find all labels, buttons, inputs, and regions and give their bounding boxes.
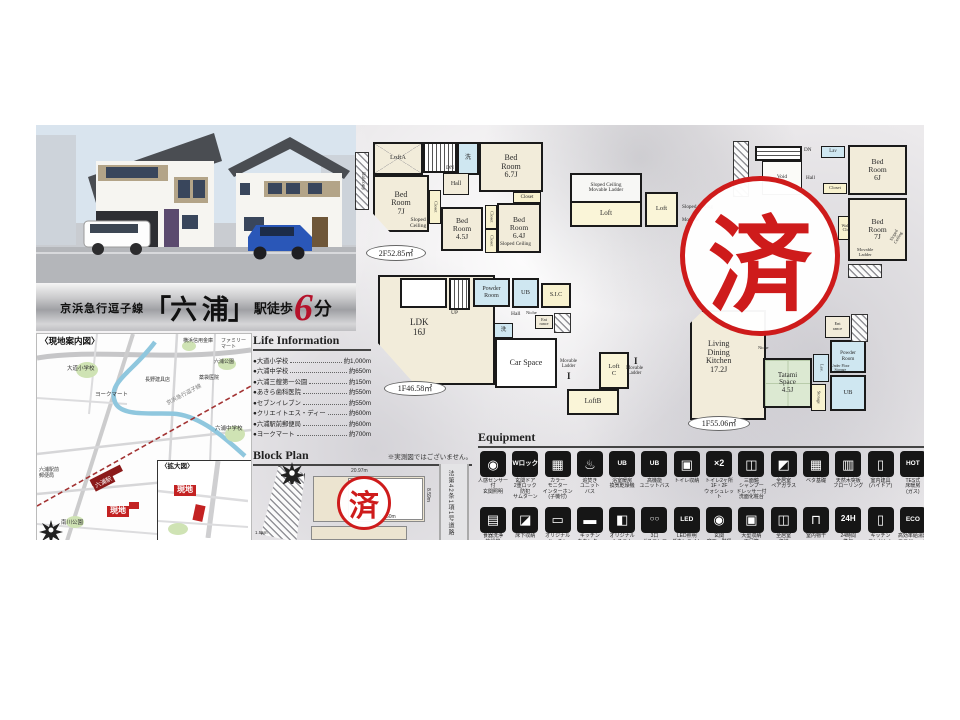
rail-line-label: 京浜急行逗子線	[60, 300, 144, 316]
room-bed-4-5: Bed Room 4.5J	[441, 207, 483, 251]
room-bed-6-7: Bed Room 6.7J	[479, 142, 543, 192]
sold-stamp-text: 済	[708, 181, 812, 332]
equipment-item: 24H24時間 換気	[833, 507, 863, 540]
room-label: Loft	[656, 206, 667, 213]
room-ldk-right-label: Living Dining Kitchen 17.2J	[706, 340, 731, 375]
handrail-icon: ◉	[706, 507, 732, 533]
map-site-label: 現地	[107, 506, 129, 517]
foundation-icon: ▦	[803, 451, 829, 477]
map-label-clinic: 薬袋医院	[199, 376, 219, 382]
room-hall-2f-left: Hall	[443, 173, 469, 195]
room-label: Hall	[451, 181, 461, 187]
niche-label: Niche	[758, 346, 768, 351]
ladder-mark: I	[634, 356, 638, 366]
equipment-label: 高機能 ユニットバス	[639, 479, 669, 490]
high-door-icon: ▯	[868, 451, 894, 477]
room-sic: S.I.C	[541, 283, 571, 308]
dim-top: 20.97m	[351, 468, 368, 474]
area-label-2f-left: 2F52.85㎡	[366, 245, 426, 261]
equipment-item: ◉玄関 廊下・階段 手すり付	[704, 507, 734, 540]
equipment-item: ▬キッチン カウンター	[575, 507, 605, 540]
sold-stamp-small-text: 済	[349, 481, 379, 525]
equipment-label: カラー モニター インターホン (子機付)	[543, 479, 573, 501]
room-label: Loft C	[608, 364, 619, 378]
life-item-name: ヨークマート	[257, 429, 295, 438]
station-banner: 京浜急行逗子線 「六 浦」 駅徒歩 6 分	[36, 284, 356, 331]
area-text: 1F46.58㎡	[398, 383, 432, 394]
room-label: Bed Room 6.7J	[501, 154, 521, 179]
life-item-name: セブンイレブン	[257, 398, 301, 407]
car-space: Car Space	[495, 338, 557, 388]
equipment-label: 浴室暖房 換気乾燥機	[610, 479, 635, 490]
room-label: Lav.	[819, 364, 824, 372]
equipment-label: 大型収納 下足箱 (鏡付)	[741, 534, 761, 540]
flyer-band: 京浜急行逗子線 「六 浦」 駅徒歩 6 分 〈現地案内	[36, 125, 924, 540]
room-label: UB	[843, 390, 852, 397]
room-label: Closet	[829, 186, 841, 191]
room-lav-1f-right: Lav.	[813, 354, 829, 382]
equipment-label: トイレ2ヶ所 1F・2F ウォシュレット	[704, 479, 734, 501]
equipment-label: オリジナル システム キッチン	[610, 534, 635, 540]
equipment-item: HOTTES式 床暖房 (ガス)	[898, 451, 924, 501]
block-plan-panel: Block Plan ※実測図ではございません。 法第42条1項1号道路 20.…	[253, 448, 472, 540]
room-loft-c: Loft C	[599, 352, 629, 389]
equipment-item: ▦カラー モニター インターホン (子機付)	[543, 451, 573, 501]
life-item-name: クリエイトエス・ディー	[257, 408, 326, 417]
leader-dots	[309, 383, 347, 384]
block-plan-note: ※実測図ではございません。	[388, 451, 472, 461]
equipment-item: ▯室内建具 (ハイドア)	[866, 451, 896, 501]
map-label-postoffice: 六浦駅前 郵便局	[39, 468, 59, 480]
exterior-render-graphic	[36, 125, 356, 283]
map-inset-site-label: 現地	[174, 485, 196, 496]
floor-plans: Balcony LoftA DN 洗 Bed Room 6.7J Hall Be…	[354, 128, 924, 433]
equipment-item: ▣トイレ収納	[672, 451, 702, 501]
equipment-label: 全居室 ペアガラス	[771, 479, 796, 490]
room-label: Tatami Space 4.5J	[778, 372, 797, 394]
room-closet: Closet	[485, 229, 497, 253]
flyer-page: 京浜急行逗子線 「六 浦」 駅徒歩 6 分 〈現地案内	[0, 0, 960, 720]
room-label: S.I.C	[550, 292, 562, 298]
leader-dots	[328, 414, 347, 415]
dim-left: 1.55m	[255, 530, 268, 535]
life-item-name: 六浦三艘第一公園	[257, 377, 307, 386]
stairs-dn-label: DN	[804, 148, 812, 154]
map-label-jhs: 六浦中学校	[215, 426, 243, 432]
mirror-dresser-icon: ◫	[738, 451, 764, 477]
room-entrance-left: Ent rance	[535, 315, 553, 329]
room-label: 洗	[501, 328, 507, 334]
movable-ladder-label: Movable Ladder	[560, 359, 577, 369]
bath-dryer-icon: UB	[609, 451, 635, 477]
room-label: Storage	[816, 391, 820, 404]
room-closet: Closet	[513, 192, 541, 203]
equipment-panel: Equipment ◉人感センサー付 玄関照明 Wロック玄関ドア 2重ロック 防…	[478, 430, 924, 540]
exterior-photo	[36, 125, 356, 283]
ventilation-24h-icon: 24H	[835, 507, 861, 533]
toilet-storage-icon: ▣	[674, 451, 700, 477]
area-label-1f-left: 1F46.58㎡	[384, 381, 446, 396]
room-loft-a: LoftA	[373, 142, 423, 175]
shoe-box-icon: ▣	[738, 507, 764, 533]
equipment-row-2: ▤食器洗浄 乾燥機 ◪床下収納 ▭オリジナル キッチン ▬キッチン カウンター …	[478, 507, 924, 540]
movable-ladder-label: Movable Ladder	[626, 366, 643, 376]
equipment-item: ▣大型収納 下足箱 (鏡付)	[736, 507, 766, 540]
room-label: Bed Room 6J	[868, 158, 886, 182]
room-label: Balcony	[359, 172, 365, 190]
floor-heating-icon: HOT	[900, 451, 924, 477]
room-closet: Closet	[485, 205, 497, 229]
station-name: 「六 浦」	[144, 288, 254, 327]
sold-stamp: 済	[680, 176, 840, 336]
led-downlight-icon: LED	[674, 507, 700, 533]
equipment-label: 玄関ドア 2重ロック 防犯 サムターン	[513, 479, 538, 501]
equipment-item: ♨追焚き ユニット バス	[575, 451, 605, 501]
unit-bath-icon: UB	[641, 451, 667, 477]
room-powder-1f-left: Powder Room	[473, 278, 510, 307]
equipment-item: ◉人感センサー付 玄関照明	[478, 451, 508, 501]
equipment-label: 天然木突板 フローリング	[833, 479, 863, 490]
sloped-ceiling-label: Sloped Ceiling	[500, 242, 531, 248]
movable-ladder-label: Movable Ladder	[857, 248, 873, 258]
equipment-label: 24時間 換気	[840, 534, 856, 540]
room-loft-b: LoftB	[567, 389, 619, 415]
equipment-label: 室内建具 (ハイドア)	[869, 479, 892, 490]
room-closet: Closet	[823, 183, 847, 194]
room-label: Closet	[489, 235, 494, 247]
equipment-item: ▦ベタ基礎	[801, 451, 831, 501]
room-label: Sloped Ceiling Movable Ladder	[589, 183, 623, 194]
kitchen-counter-icon: ▬	[577, 507, 603, 533]
equipment-item: UB高機能 ユニットバス	[639, 451, 669, 501]
room-lav-2f-left: 洗	[457, 142, 479, 175]
room-label: Powder Room	[840, 351, 856, 362]
room-label: Powder Room	[482, 286, 500, 299]
room-entrance-right: Ent rance	[825, 316, 850, 338]
room-label: Lav	[829, 149, 836, 154]
room-loft-mid-1: Loft	[570, 201, 642, 227]
eco-jozu-icon: ECO	[900, 507, 924, 533]
double-lock-icon: Wロック	[512, 451, 538, 477]
room-label: Loft	[600, 210, 612, 217]
room-label: 洗	[465, 155, 471, 161]
hall-label: Hall	[511, 312, 520, 318]
room-label: LoftA	[390, 155, 406, 162]
map-inset-graphic	[158, 461, 248, 538]
dishwasher-icon: ▤	[480, 507, 506, 533]
all-room-storage-icon: ◫	[771, 507, 797, 533]
under-floor-storage-label: Under Floor Storage	[831, 364, 850, 372]
map-inset-title: 〈拡大図〉	[161, 463, 194, 470]
equipment-label: 3口 ガスコンロ	[642, 534, 667, 540]
leader-dots	[290, 372, 347, 373]
map-label-yorkmart: ヨークマート	[95, 392, 128, 398]
stairs-up-label: UP	[451, 311, 458, 317]
equipment-label: キッチン コンセント	[868, 534, 893, 540]
equipment-label: オリジナル キッチン	[545, 534, 570, 540]
map-label-familymart: ファミリーマート	[221, 339, 249, 351]
entrance-porch	[554, 313, 571, 333]
stairs-up	[449, 278, 470, 310]
room-label: Bed Room 7J	[391, 191, 411, 216]
flooring-icon: ▥	[835, 451, 861, 477]
equipment-label: 全居室 収納	[776, 534, 791, 540]
equipment-item: ○○3口 ガスコンロ	[639, 507, 669, 540]
room-label: Closet	[433, 201, 438, 213]
room-label: UB	[521, 290, 530, 297]
room-closet: Closet	[429, 190, 441, 224]
walk-minutes: 6	[294, 289, 313, 327]
leader-dots	[297, 435, 347, 436]
original-kitchen-icon: ▭	[545, 507, 571, 533]
sloped-ceiling-area: Sloped Ceiling Movable Ladder	[570, 173, 642, 201]
equipment-label: キッチン カウンター	[577, 534, 602, 540]
room-label: LoftB	[585, 398, 602, 405]
leader-dots	[303, 425, 347, 426]
equipment-label: トイレ収納	[674, 479, 699, 485]
underfloor-storage-icon: ◪	[512, 507, 538, 533]
equipment-item: ▯キッチン コンセント	[866, 507, 896, 540]
stairs-dn-label: DN	[446, 166, 454, 172]
room-ub-1f-left: UB	[512, 278, 539, 308]
pair-glass-icon: ◩	[771, 451, 797, 477]
equipment-item: ◧オリジナル システム キッチン	[607, 507, 637, 540]
room-label: Closet	[521, 195, 534, 200]
equipment-item: LEDLED照明 ダウンライト	[672, 507, 702, 540]
equipment-item: UB浴室暖房 換気乾燥機	[607, 451, 637, 501]
equipment-label: LED照明 ダウンライト	[672, 534, 702, 540]
map-label-store: 長野建具店	[145, 378, 170, 384]
room-label: Bed Room 4.5J	[453, 217, 471, 241]
equipment-item: ⊓室内物干	[801, 507, 831, 540]
room-balcony: Balcony	[355, 152, 369, 210]
intercom-icon: ▦	[545, 451, 571, 477]
map-title: 〈現地案内図〉	[40, 337, 100, 347]
compass-icon	[281, 462, 303, 484]
room-lav-2f-right: Lav	[821, 146, 845, 158]
leader-dots	[303, 393, 347, 394]
equipment-item: ◫三面鏡 シャンプー ドレッサー付 洗面化粧台	[736, 451, 766, 501]
room-label: Bed Room 7J	[868, 218, 886, 242]
system-kitchen-icon: ◧	[609, 507, 635, 533]
area-label-1f-right: 1F55.06㎡	[688, 416, 750, 431]
room-label: Bed Room 6.4J	[510, 216, 528, 240]
road-label: 法第42条1項1号道路	[446, 470, 455, 536]
life-item-name: 六浦駅前郵便局	[257, 419, 301, 428]
motion-sensor-light-icon: ◉	[480, 451, 506, 477]
map-label-park2: 南川公園	[61, 520, 83, 526]
equipment-item: ◩全居室 ペアガラス	[769, 451, 799, 501]
equipment-item: ECO高効率給湯器 エコジョーズ	[898, 507, 924, 540]
equipment-item: ▭オリジナル キッチン	[543, 507, 573, 540]
equipment-label: 人感センサー付 玄関照明	[478, 479, 508, 496]
kitchen-outlet-icon: ▯	[868, 507, 894, 533]
room-lav-1f-left: 洗	[494, 323, 513, 338]
sloped-ceiling-label: Sloped Ceiling	[410, 218, 426, 230]
equipment-row-1: ◉人感センサー付 玄関照明 Wロック玄関ドア 2重ロック 防犯 サムターン ▦カ…	[478, 451, 924, 501]
equipment-label: 三面鏡 シャンプー ドレッサー付 洗面化粧台	[736, 479, 766, 501]
equipment-label: TES式 床暖房 (ガス)	[905, 479, 920, 496]
equipment-item: ▤食器洗浄 乾燥機	[478, 507, 508, 540]
equipment-label: 高効率給湯器 エコジョーズ	[898, 534, 924, 540]
equipment-item: Wロック玄関ドア 2重ロック 防犯 サムターン	[510, 451, 540, 501]
equipment-label: 追焚き ユニット バス	[580, 479, 600, 496]
room-label: Ent rance	[833, 322, 843, 331]
walk-minutes-unit: 分	[314, 295, 332, 321]
equipment-label: 室内物干	[806, 534, 826, 540]
map-label-park1: 六浦公園	[214, 360, 234, 366]
leader-dots	[290, 362, 341, 363]
equipment-item: ▥天然木突板 フローリング	[833, 451, 863, 501]
room-label: Closet	[489, 211, 494, 223]
two-toilets-icon: ×2	[706, 451, 732, 477]
map-inset: 〈拡大図〉 現地	[157, 460, 252, 540]
map-label-bank: 横浜信用金庫	[183, 339, 213, 345]
equipment-label: ベタ基礎	[806, 479, 826, 485]
reheat-bath-icon: ♨	[577, 451, 603, 477]
equipment-item: ◫全居室 収納	[769, 507, 799, 540]
room-bed-6: Bed Room 6J	[848, 145, 907, 195]
area-map: 〈現地案内図〉 大道小学校 ヨークマート 横浜信用金庫 ファミリーマート 六浦公…	[36, 333, 252, 540]
room-ldk-label: LDK 16J	[410, 318, 429, 337]
room-label: Ent rance	[539, 318, 548, 327]
room-loft-mid-2: Loft	[645, 192, 678, 227]
equipment-label: 玄関 廊下・階段 手すり付	[707, 534, 732, 540]
room-label: Car Space	[510, 359, 543, 367]
area-text: 2F52.85㎡	[379, 248, 413, 259]
sold-stamp-small: 済	[337, 476, 391, 530]
balcony-strip	[848, 264, 882, 278]
equipment-item: ×2トイレ2ヶ所 1F・2F ウォシュレット	[704, 451, 734, 501]
life-item-name: あきら歯科医院	[257, 387, 301, 396]
ladder-mark: I	[567, 371, 571, 381]
equipment-title: Equipment	[478, 430, 924, 448]
entrance-porch	[851, 314, 868, 342]
indoor-drying-icon: ⊓	[803, 507, 829, 533]
equipment-label: 食器洗浄 乾燥機	[483, 534, 503, 540]
room-ub-right: UB	[830, 375, 866, 411]
equipment-item: ◪床下収納	[510, 507, 540, 540]
stairs-dn-right	[755, 146, 802, 161]
equipment-label: 床下収納	[515, 534, 535, 540]
map-label-school: 大道小学校	[67, 366, 95, 372]
dim-right: 8.59m	[425, 488, 431, 502]
area-text: 1F55.06㎡	[702, 418, 736, 429]
room-tatami: Tatami Space 4.5J	[763, 358, 812, 408]
room-storage: Storage	[811, 384, 826, 411]
walk-label: 駅徒歩	[254, 298, 293, 317]
life-item-name: 大道小学校	[257, 356, 288, 365]
kitchen-area	[400, 278, 447, 308]
life-item-name: 六浦中学校	[257, 366, 288, 375]
leader-dots	[303, 404, 347, 405]
gas-stove-icon: ○○	[641, 507, 667, 533]
